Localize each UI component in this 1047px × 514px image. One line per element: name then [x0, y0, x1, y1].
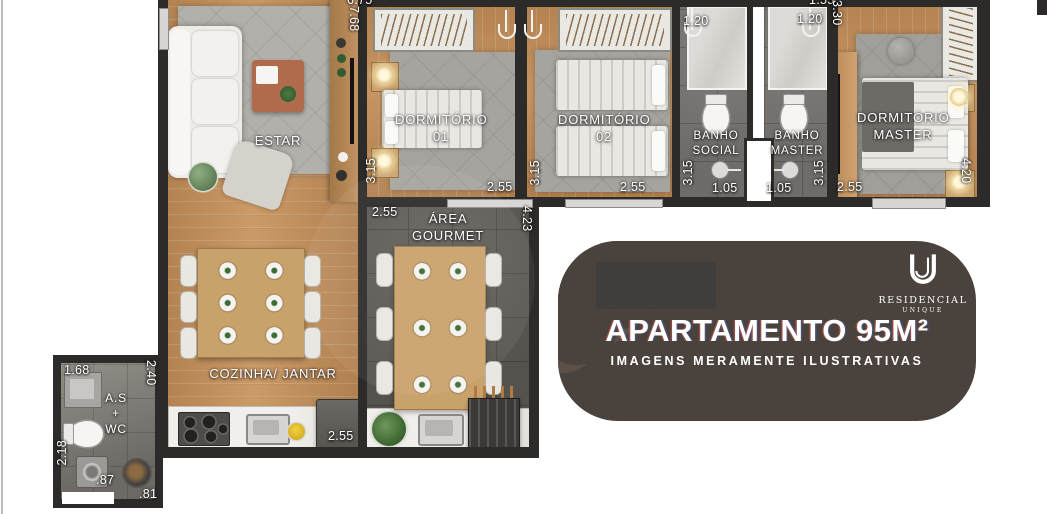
- measure-banho-social-width: 1.05: [712, 181, 738, 195]
- dining-table: [197, 248, 305, 358]
- chair: [181, 292, 196, 322]
- measure-estar-depth: 7.68: [347, 6, 361, 32]
- cooktop: [178, 412, 230, 446]
- measure-dorm2-width: 2.55: [620, 180, 646, 194]
- measure-aswc-right: 2.40: [144, 360, 158, 386]
- measure-gourmet-top: 2.55: [372, 205, 398, 219]
- room-label-line: 02: [558, 129, 650, 146]
- unique-u-logo-icon: [908, 253, 938, 289]
- measure-banho-master-width: 1.05: [766, 181, 792, 195]
- room-label-area-gourmet: ÁREA GOURMET: [400, 211, 496, 244]
- adjacent-wall-fragment: [1037, 0, 1047, 15]
- room-label-text: ESTAR: [255, 133, 301, 148]
- measure-dorm1-height: 3.15: [364, 158, 378, 184]
- door-dorm2: [522, 10, 544, 44]
- chair: [181, 328, 196, 358]
- room-label-line: MASTER: [768, 144, 826, 159]
- window-master: [872, 198, 946, 209]
- room-label-line: ÁREA: [400, 211, 496, 228]
- wall-banho-master-dorm: [827, 0, 838, 207]
- door-dorm1: [496, 10, 518, 44]
- console-decor-dot: [336, 38, 346, 48]
- watermark-circle: [305, 165, 535, 395]
- room-label-line: A.S: [92, 391, 140, 406]
- sink-basin: [253, 420, 279, 435]
- wall-banhos: [747, 0, 753, 140]
- room-label-text: COZINHA/ JANTAR: [209, 366, 336, 381]
- badge-subtitle: IMAGENS MERAMENTE ILUSTRATIVAS: [558, 354, 976, 368]
- measure-master-height: 4.20: [959, 158, 973, 184]
- room-label-estar: ESTAR: [233, 133, 323, 150]
- floor-drain: [124, 460, 150, 486]
- console-decor-dot: [337, 68, 346, 77]
- room-label-line: DORMITÓRIO: [857, 110, 949, 127]
- console-decor-dot: [336, 170, 347, 181]
- room-label-dormitorio-master: DORMITÓRIO MASTER: [857, 110, 949, 143]
- console-decor-dot: [338, 152, 348, 162]
- window-left: [159, 8, 169, 50]
- closet-hangers: [566, 14, 664, 46]
- plant-leaves: [189, 163, 217, 191]
- brand-name: RESIDENCIAL: [876, 295, 970, 306]
- kitchen-sink: [246, 414, 290, 445]
- measure-dorm1-width: 2.55: [487, 180, 513, 194]
- floor-plant: [184, 158, 222, 196]
- wall-gourmet-right: [529, 197, 539, 458]
- console-decor-dot: [337, 54, 346, 63]
- closet-hangers: [949, 8, 973, 76]
- room-label-line: SOCIAL: [687, 144, 745, 159]
- wall-dorm2-banho: [672, 0, 680, 207]
- lamp: [375, 66, 393, 84]
- tank-basin: [70, 379, 94, 399]
- room-label-dormitorio-02: DORMITÓRIO 02: [558, 112, 650, 145]
- info-badge: RESIDENCIAL UNIQUE APARTAMENTO 95M² IMAG…: [558, 241, 976, 421]
- closet-master: [941, 2, 981, 82]
- room-label-line: GOURMET: [400, 228, 496, 245]
- room-label-line: +: [92, 406, 140, 421]
- room-label-banho-social: BANHO SOCIAL: [687, 129, 745, 158]
- sofa-cushion: [192, 79, 238, 124]
- room-label-banho-master: BANHO MASTER: [768, 129, 826, 158]
- sofa: [168, 26, 242, 178]
- measure-master-side: 3.30: [830, 0, 844, 26]
- tv-screen: [350, 58, 354, 144]
- measure-aswc-top: 1.68: [64, 363, 90, 377]
- measure-kitchen-width: 2.55: [328, 429, 354, 443]
- room-label-line: BANHO: [687, 129, 745, 144]
- measure-banho-master-height: 3.15: [812, 160, 826, 186]
- sink-social-faucet: [727, 169, 741, 171]
- page-edge-line: [1, 0, 3, 514]
- room-label-line: BANHO: [768, 129, 826, 144]
- churrasqueira-grill: [468, 398, 520, 448]
- lamp: [950, 88, 968, 106]
- room-label-cozinha-jantar: COZINHA/ JANTAR: [208, 366, 338, 383]
- door-mat: [62, 492, 114, 504]
- room-label-line: DORMITÓRIO: [558, 112, 650, 129]
- sill-dorm2: [565, 199, 663, 208]
- ottoman: [888, 38, 914, 64]
- closet-dorm1: [373, 8, 475, 52]
- wall-bottom: [158, 447, 539, 458]
- sink-master: [782, 162, 798, 178]
- coffee-table: [252, 60, 304, 112]
- wall-right: [977, 0, 990, 207]
- badge-title: APARTAMENTO 95M²: [558, 313, 976, 349]
- counter-plant: [372, 412, 406, 446]
- bed-dorm2-a: [556, 60, 668, 110]
- measure-master-width: 2.55: [837, 180, 863, 194]
- refrigerator: [316, 399, 362, 451]
- measure-aswc-w1: .87: [96, 473, 114, 487]
- measure-aswc-w2: .81: [139, 487, 157, 501]
- room-label-as-wc: A.S + WC: [92, 391, 140, 437]
- wall-aswc-left: [53, 355, 61, 508]
- fruit-bowl: [288, 423, 305, 440]
- room-label-line: WC: [92, 422, 140, 437]
- measure-banho-master-door: 1.20: [797, 12, 823, 26]
- room-label-line: 01: [395, 129, 487, 146]
- measure-dorm2-height: 3.15: [528, 160, 542, 186]
- room-label-line: DORMITÓRIO: [395, 112, 487, 129]
- gourmet-sink: [418, 414, 464, 446]
- chair: [181, 256, 196, 286]
- measure-banho-social-height: 3.15: [681, 160, 695, 186]
- measure-banho-social-door: 1.20: [683, 14, 709, 28]
- sink-basin: [425, 420, 453, 436]
- room-label-line: MASTER: [857, 127, 949, 144]
- closet-dorm2: [558, 8, 672, 52]
- pillow: [652, 131, 665, 171]
- sofa-cushion: [192, 31, 238, 76]
- sink-social: [712, 162, 728, 178]
- measure-aswc-left: 2.18: [55, 440, 69, 466]
- sofa-back: [170, 29, 190, 175]
- pillow: [652, 65, 665, 105]
- floorplan-page: ESTAR DORMITÓRIO 01 DORMITÓRIO 02 BANHO …: [0, 0, 1047, 514]
- badge-photo-placeholder: [596, 262, 716, 309]
- coffee-table-tray: [256, 66, 278, 84]
- room-label-dormitorio-01: DORMITÓRIO 01: [395, 112, 487, 145]
- coffee-table-plant: [280, 86, 296, 102]
- measure-gourmet-height: 4.23: [520, 206, 534, 232]
- closet-hangers: [381, 14, 467, 46]
- brand-logo: RESIDENCIAL UNIQUE: [876, 253, 970, 314]
